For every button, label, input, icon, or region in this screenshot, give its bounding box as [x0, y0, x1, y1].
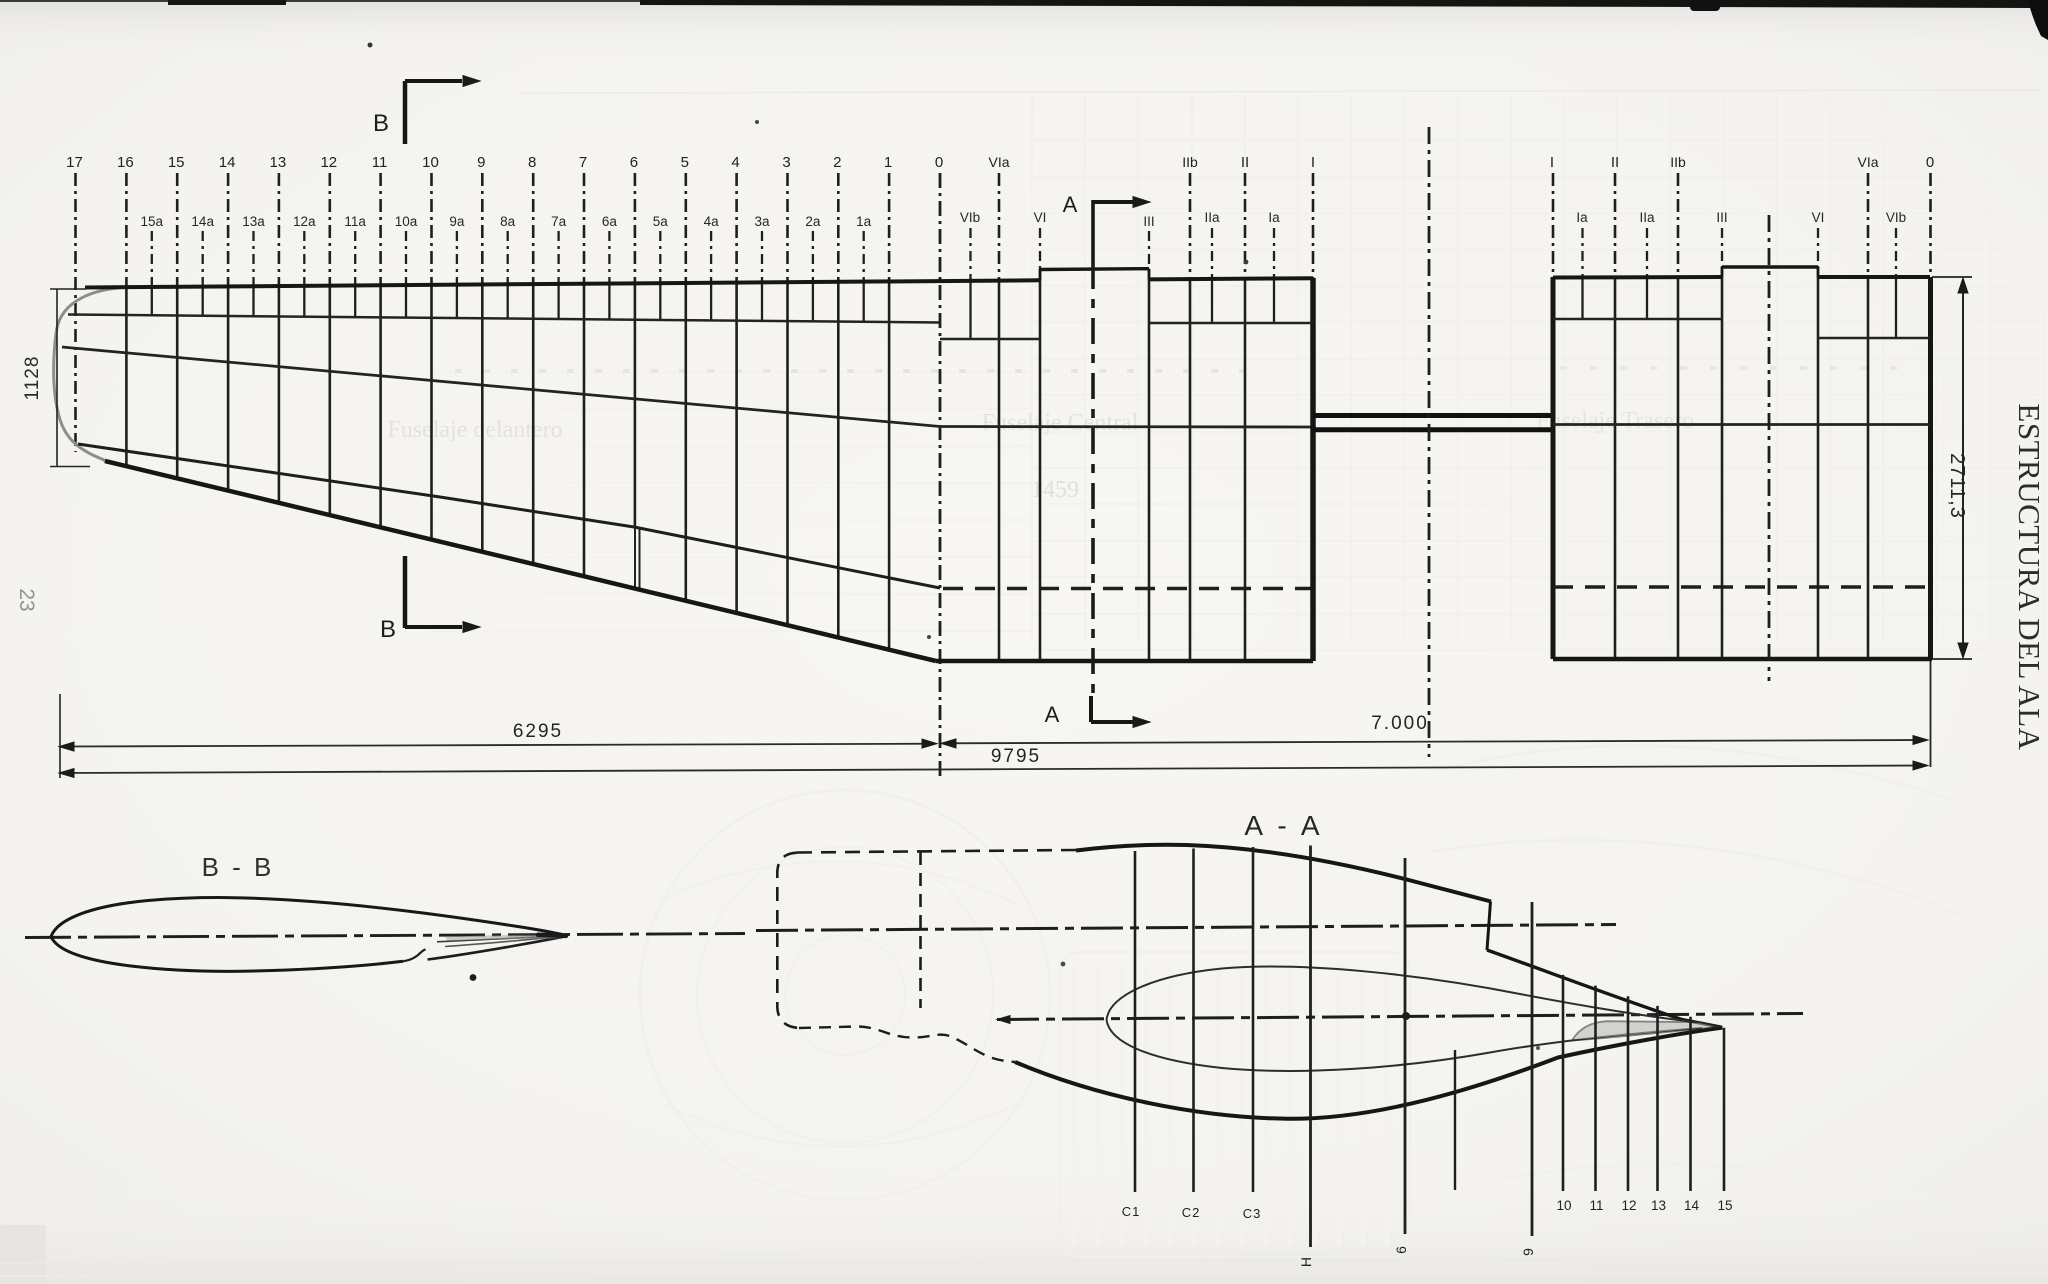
svg-text:2a: 2a — [805, 214, 821, 229]
svg-text:2: 2 — [833, 154, 841, 171]
svg-text:IIb: IIb — [1670, 154, 1686, 170]
svg-text:11: 11 — [1589, 1198, 1603, 1213]
svg-text:VI: VI — [1812, 210, 1825, 225]
svg-text:11a: 11a — [344, 214, 366, 229]
svg-text:H: H — [1298, 1257, 1314, 1267]
svg-text:9a: 9a — [449, 214, 465, 229]
svg-text:12: 12 — [320, 154, 337, 171]
svg-text:Ia: Ia — [1268, 210, 1280, 225]
svg-text:VIb: VIb — [1886, 210, 1906, 225]
svg-text:15: 15 — [1717, 1198, 1732, 1213]
svg-text:10a: 10a — [395, 214, 418, 229]
svg-text:15: 15 — [168, 154, 185, 171]
svg-text:IIa: IIa — [1204, 210, 1220, 225]
svg-text:12a: 12a — [293, 214, 316, 229]
svg-text:VIb: VIb — [960, 210, 980, 225]
svg-text:4: 4 — [731, 154, 739, 171]
svg-text:15a: 15a — [141, 214, 164, 229]
svg-text:B: B — [373, 110, 389, 137]
svg-text:0: 0 — [935, 154, 943, 171]
svg-text:Ia: Ia — [1576, 210, 1588, 225]
svg-text:VIa: VIa — [1857, 154, 1878, 170]
svg-text:I: I — [1550, 154, 1554, 171]
svg-text:VI: VI — [1034, 210, 1047, 225]
svg-text:C1: C1 — [1122, 1204, 1141, 1219]
svg-text:1128: 1128 — [22, 356, 43, 401]
svg-text:11: 11 — [372, 154, 388, 171]
svg-text:7.000: 7.000 — [1371, 713, 1429, 734]
svg-text:III: III — [1716, 210, 1727, 225]
svg-text:1a: 1a — [856, 214, 872, 229]
svg-text:23: 23 — [15, 588, 38, 611]
svg-text:II: II — [1241, 154, 1249, 171]
svg-text:III: III — [1143, 214, 1154, 229]
svg-text:9795: 9795 — [991, 746, 1041, 767]
svg-text:4a: 4a — [704, 214, 720, 229]
svg-text:8a: 8a — [500, 214, 516, 229]
svg-text:1: 1 — [884, 154, 892, 171]
svg-text:5: 5 — [681, 154, 689, 171]
svg-text:14a: 14a — [191, 214, 214, 229]
svg-text:5a: 5a — [653, 214, 669, 229]
svg-text:8: 8 — [528, 154, 536, 171]
svg-text:13: 13 — [1651, 1198, 1666, 1213]
svg-text:17: 17 — [66, 154, 83, 171]
svg-text:C3: C3 — [1243, 1206, 1262, 1221]
svg-text:VIa: VIa — [988, 154, 1009, 170]
svg-text:14: 14 — [1684, 1198, 1700, 1213]
svg-text:12: 12 — [1621, 1198, 1636, 1213]
svg-text:IIb: IIb — [1182, 154, 1198, 170]
svg-text:7: 7 — [579, 154, 587, 171]
svg-text:Fuselaje Central: Fuselaje Central — [982, 410, 1139, 436]
svg-text:10: 10 — [422, 154, 439, 171]
svg-text:0: 0 — [1926, 154, 1934, 171]
svg-text:ESTRUCTURA DEL ALA: ESTRUCTURA DEL ALA — [2012, 403, 2047, 750]
svg-text:B - B: B - B — [202, 852, 275, 882]
svg-text:13: 13 — [270, 154, 287, 171]
svg-text:6: 6 — [1393, 1246, 1409, 1254]
svg-text:C2: C2 — [1182, 1205, 1201, 1220]
svg-text:9: 9 — [1520, 1248, 1536, 1256]
svg-text:A: A — [1063, 192, 1078, 217]
svg-text:II: II — [1611, 154, 1619, 171]
svg-text:B: B — [380, 616, 396, 643]
svg-text:6: 6 — [630, 154, 638, 171]
svg-text:14: 14 — [219, 154, 236, 171]
svg-text:Fuselaje delantero: Fuselaje delantero — [387, 417, 562, 443]
svg-text:2711,3: 2711,3 — [1946, 453, 1968, 519]
svg-text:A - A: A - A — [1244, 810, 1323, 841]
svg-text:9: 9 — [477, 154, 485, 171]
svg-text:3a: 3a — [754, 214, 770, 229]
svg-text:6a: 6a — [602, 214, 618, 229]
svg-text:10: 10 — [1556, 1198, 1571, 1213]
svg-text:3: 3 — [782, 154, 790, 171]
svg-text:16: 16 — [117, 154, 134, 171]
svg-text:A: A — [1045, 702, 1060, 727]
svg-text:1459: 1459 — [1031, 477, 1079, 503]
svg-text:IIa: IIa — [1639, 210, 1655, 225]
svg-text:13a: 13a — [242, 214, 265, 229]
svg-text:7a: 7a — [551, 214, 567, 229]
svg-text:6295: 6295 — [513, 721, 563, 742]
svg-text:I: I — [1311, 154, 1315, 171]
